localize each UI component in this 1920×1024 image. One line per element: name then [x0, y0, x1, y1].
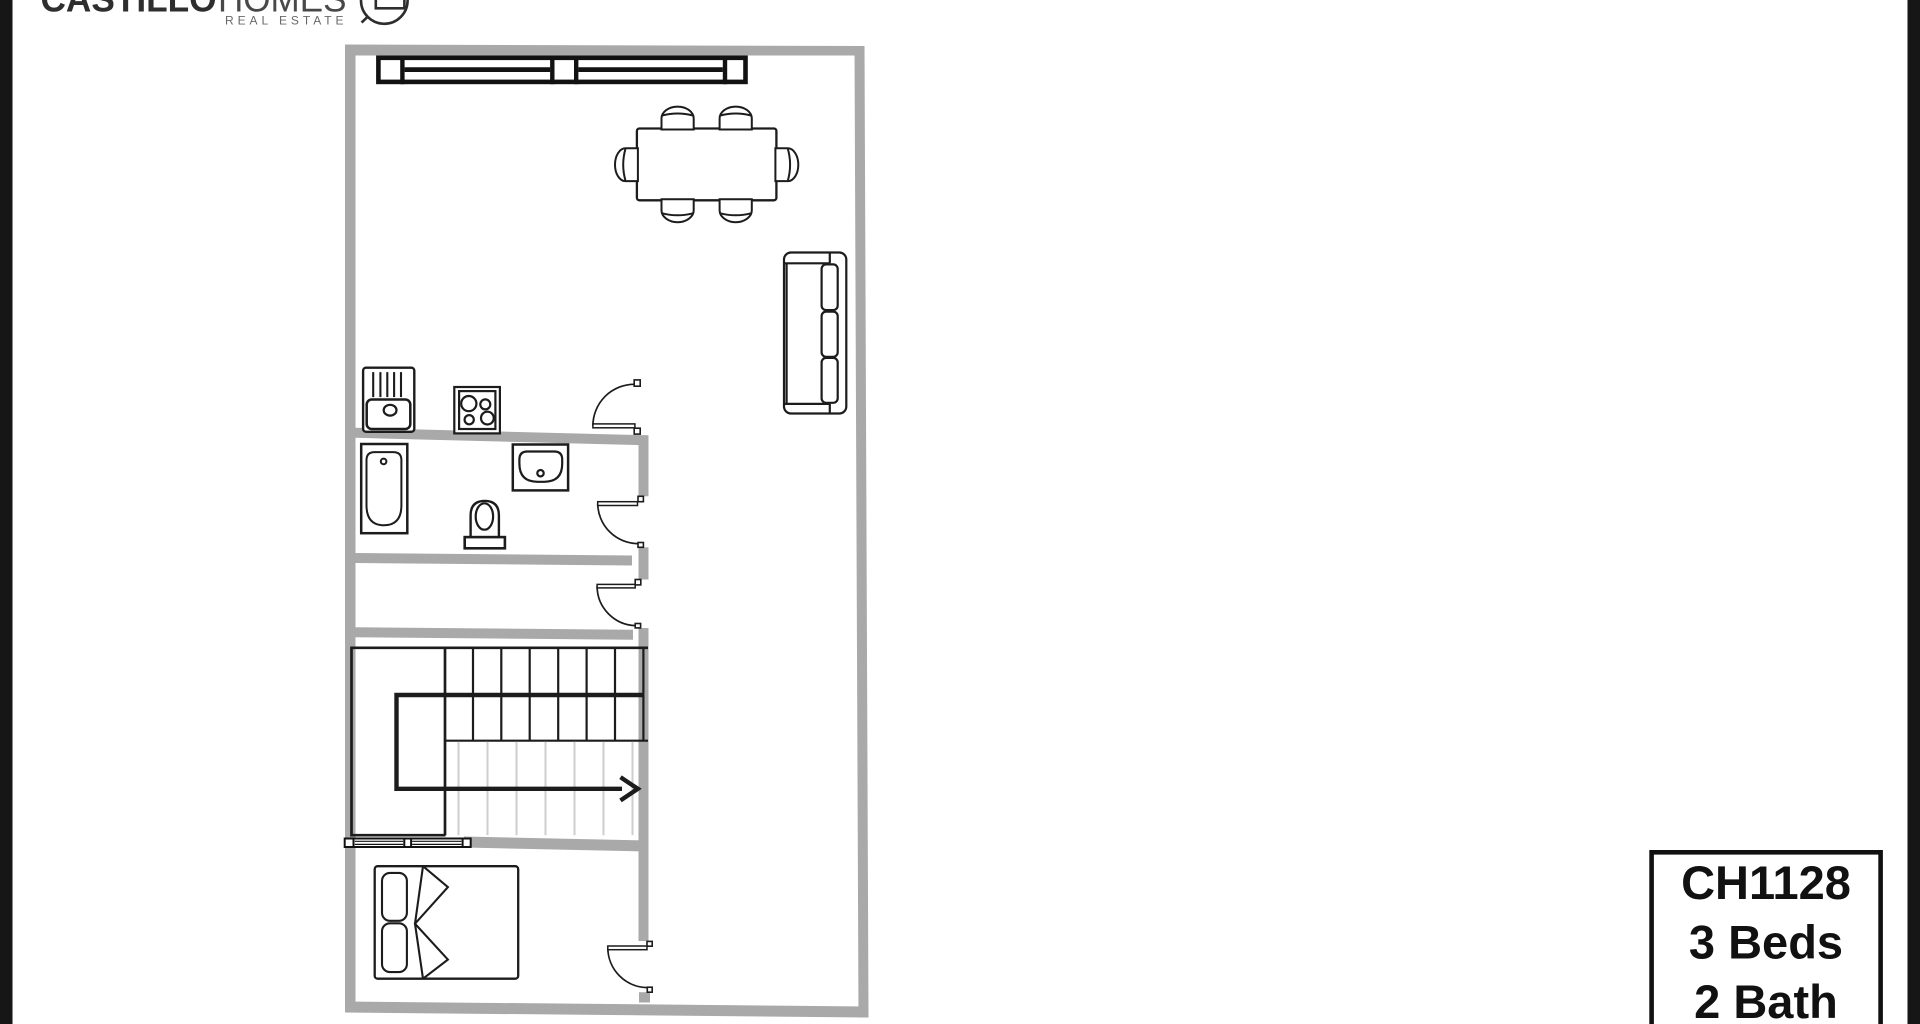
svg-text:2 Bath: 2 Bath [1694, 975, 1838, 1024]
svg-text:CASTILLO: CASTILLO [41, 0, 217, 19]
svg-text:3 Beds: 3 Beds [1689, 916, 1843, 969]
svg-text:REAL ESTATE: REAL ESTATE [225, 13, 348, 27]
svg-text:CH1128: CH1128 [1681, 856, 1851, 909]
